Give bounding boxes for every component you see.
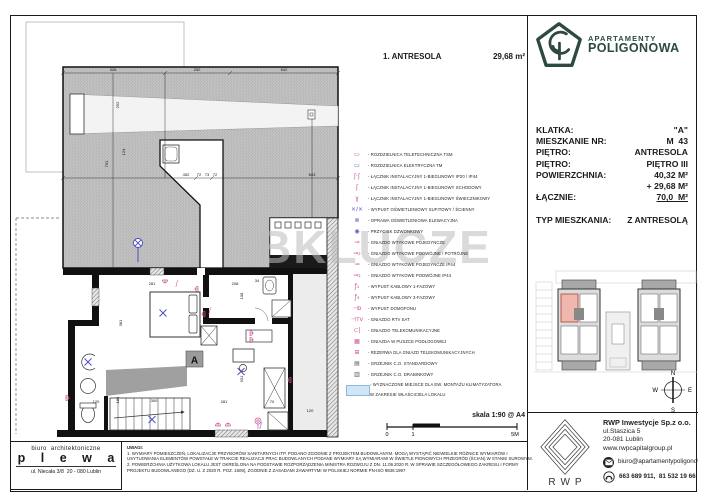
legend-symbol-icon: ɣ xyxy=(346,195,368,203)
info-label: PIĘTRO: xyxy=(536,147,571,158)
legend-item-label: - PRZYCISK DZWONKOWY xyxy=(368,227,423,237)
legend-symbol-icon: ▭ xyxy=(346,162,368,170)
title-block-panel: APARTAMENTY POLIGONOWA KLATKA: "A" MIESZ… xyxy=(527,15,698,490)
legend-item: ×∕× - WYPUST OŚWIETLENIOWY SUFITOWY / ŚC… xyxy=(346,204,524,215)
rwp-diamond-icon xyxy=(536,418,594,476)
legend-item-label: - ŁĄCZNIK INSTALACYJNY 1-BIEGUNOWY SCHOD… xyxy=(368,183,482,193)
info-value: PIĘTRO III xyxy=(646,159,688,170)
compass-n: N xyxy=(671,371,675,377)
window xyxy=(150,268,164,275)
info-row: PIĘTRO: PIĘTRO III xyxy=(536,159,688,170)
legend-item: ⊗ - OPRAWA OŚWIETLENIOWA ELEWACYJNA xyxy=(346,215,524,226)
legend-item: ⊣ᴅ - WYPUST DOMOFONU xyxy=(346,303,524,314)
symbols-legend: ▭ - ROZDZIELNICA TELETECHNICZNA TSM ▭ - … xyxy=(346,149,524,400)
legend-item-label: - GNIAZDO TELEKOMUNIKACYJNE xyxy=(368,326,440,336)
building-center xyxy=(606,312,630,370)
type-value: Z ANTRESOLĄ xyxy=(627,215,688,226)
info-label: KLATKA: xyxy=(536,125,574,136)
dim-label: 208 xyxy=(232,281,239,286)
door-gap xyxy=(197,268,205,275)
legend-item: ɣ - ŁĄCZNIK INSTALACYJNY 1-BIEGUNOWY ŚWI… xyxy=(346,193,524,204)
dim-label: 331 xyxy=(239,375,244,382)
window xyxy=(92,288,99,306)
legend-item: ⊸ - GNIAZDO WTYKOWE POJEDYNCZE IP44 xyxy=(346,259,524,270)
info-row: MIESZKANIE NR: M 43 xyxy=(536,136,688,147)
apartment-info: KLATKA: "A" MIESZKANIE NR: M 43 PIĘTRO: … xyxy=(536,125,688,227)
neighbor-dashed-boundary xyxy=(16,218,60,434)
dim-label: 452 xyxy=(183,172,190,177)
rwp-logo: RWP xyxy=(534,418,596,490)
plan-area: 29,68 m² xyxy=(493,52,525,61)
brand-line2: POLIGONOWA xyxy=(588,42,680,55)
info-value: + 29,68 M² xyxy=(647,181,688,192)
svg-text:1: 1 xyxy=(411,432,414,437)
legend-symbol-icon: ⊗ xyxy=(346,217,368,225)
info-label: MIESZKANIE NR: xyxy=(536,136,607,147)
legend-item-label: - GRZEJNIK C.O. DRABINKOWY xyxy=(368,370,433,380)
compass-rose: N S W E xyxy=(652,371,692,413)
dim-label: 70 xyxy=(270,399,275,404)
phone-row: 663 689 911, 81 532 19 66 xyxy=(603,471,698,483)
brand-logo-block: APARTAMENTY POLIGONOWA xyxy=(535,20,680,70)
email-row: biuro@apartamentypoligonowa.pl xyxy=(603,457,698,468)
legend-symbol-icon: ▭ xyxy=(346,151,368,159)
legend-item: ⊸₂ - GNIAZDO WTYKOWE PODWÓJNE / POTRÓJNE xyxy=(346,248,524,259)
info-row: PIĘTRO: ANTRESOLA xyxy=(536,147,688,158)
dim-label: 643 xyxy=(309,172,316,177)
poligonowa-pentagon-icon xyxy=(535,20,583,70)
dim-label: 72 xyxy=(213,172,218,177)
legend-item-label: - GNIAZDO RTV SAT xyxy=(368,315,410,325)
room-marker: A xyxy=(186,351,203,367)
developer-email: biuro@apartamentypoligonowa.pl xyxy=(618,458,698,466)
info-value: ANTRESOLA xyxy=(635,147,688,158)
info-label: POWIERZCHNIA: xyxy=(536,170,606,181)
dim-label: 381 xyxy=(118,319,123,326)
info-row: POWIERZCHNIA: 40,32 M² xyxy=(536,170,688,181)
legend-item-label: - WYPUST OŚWIETLENIOWY SUFITOWY / ŚCIENN… xyxy=(368,205,475,215)
architect-address: ul. Niecała 3/8 20 - 080 Lublin xyxy=(16,466,116,475)
legend-item: - WYZNACZONE MIEJSCE DLA EW. MONTAŻU KLI… xyxy=(346,380,524,400)
legend-item-label: - REZERWA DLA GNIAZD TELEKOMUNIKACYJNYCH xyxy=(368,348,475,358)
legend-item-label: - ŁĄCZNIK INSTALACYJNY 1-BIEGUNOWY ŚWIEC… xyxy=(368,194,490,204)
svg-text:0: 0 xyxy=(385,432,388,437)
building-right xyxy=(638,280,680,370)
legend-item: ◉ - PRZYCISK DZWONKOWY xyxy=(346,226,524,237)
info-value: "A" xyxy=(674,125,688,136)
legend-item-label: - GNIAZDO WTYKOWE POJEDYNCZE IP44 xyxy=(368,260,455,270)
dim-label: 73 xyxy=(205,172,210,177)
dim-label: 252 xyxy=(115,101,120,108)
dim-label: 281 xyxy=(221,399,228,404)
compass-e: E xyxy=(688,388,692,394)
site-key-plan: N S W E xyxy=(528,268,698,413)
legend-item-label: - ROZDZIELNICA TELETECHNICZNA TSM xyxy=(368,150,453,160)
notes-line: PROJEKTU BUDOWLANEGO (DZ. U. Z 2020 R. P… xyxy=(127,468,523,474)
legend-symbol-icon: ⊞ xyxy=(346,349,368,357)
legend-item: ▤ - GRZEJNIK C.O. STANDARDOWY xyxy=(346,358,524,369)
legend-item-label: - ROZDZIELNICA ELEKTRYCZNA TM xyxy=(368,161,442,171)
legend-symbol-icon: ▥ xyxy=(346,371,368,379)
compass-w: W xyxy=(652,388,658,394)
dim-label: 326 xyxy=(110,67,117,72)
info-row: ŁĄCZNIE: 70,0 M² xyxy=(536,192,688,203)
dim-label: 185 xyxy=(115,396,120,403)
legend-item: ▭ - ROZDZIELNICA ELEKTRYCZNA TM xyxy=(346,160,524,171)
legend-symbol-icon: ×∕× xyxy=(346,206,368,214)
info-row: KLATKA: "A" xyxy=(536,125,688,136)
scale-label: skala 1:90 @ A4 xyxy=(383,412,525,419)
dim-label: 72 xyxy=(197,172,202,177)
legend-item: ⊸ - GNIAZDO WTYKOWE POJEDYNCZE xyxy=(346,237,524,248)
info-label: ŁĄCZNIE: xyxy=(536,192,576,203)
phone-icon xyxy=(603,471,615,483)
legend-item: ʃ - ŁĄCZNIK INSTALACYJNY 1-BIEGUNOWY SCH… xyxy=(346,182,524,193)
developer-company: RWP Inwestycje Sp.z o.o. xyxy=(603,418,698,428)
legend-item-label: - WYPUST KABLOWY 1-FAZOWY xyxy=(368,282,435,292)
legend-item: ⊣ᴛᴠ - GNIAZDO RTV SAT xyxy=(346,314,524,325)
legend-item: ƒ₃ - WYPUST KABLOWY 3-FAZOWY xyxy=(346,292,524,303)
legend-item: ʃ·ʃ - ŁĄCZNIK INSTALACYJNY 1-BIEGUNOWY I… xyxy=(346,171,524,182)
legend-item-label: - OPRAWA OŚWIETLENIOWA ELEWACYJNA xyxy=(368,216,458,226)
legend-symbol-icon: ◉ xyxy=(346,228,368,236)
legend-symbol-icon: ʃ xyxy=(346,184,368,192)
developer-phone: 663 689 911, 81 532 19 66 xyxy=(619,473,696,481)
dim-label: 34 xyxy=(255,278,260,283)
svg-text:5M: 5M xyxy=(511,432,519,437)
apartment-type-row: TYP MIESZKANIA: Z ANTRESOLĄ xyxy=(536,215,688,226)
dim-label: 120 xyxy=(93,399,100,404)
legend-item-label: - GNIAZDO WTYKOWE PODWÓJNE / POTRÓJNE xyxy=(368,249,468,259)
legend-item-label: - GNIAZDO WTYKOWE POJEDYNCZE xyxy=(368,238,445,248)
scale-bar-block: skala 1:90 @ A4 0 1 5M xyxy=(383,412,525,442)
legend-item: ▥ - GRZEJNIK C.O. DRABINKOWY xyxy=(346,369,524,380)
legend-symbol-icon: ⊂| xyxy=(346,327,368,335)
architect-name: p l e w a xyxy=(11,452,121,465)
info-value: 70,0 M² xyxy=(656,192,688,203)
email-icon xyxy=(603,457,614,468)
legend-item: ⊸₂ - GNIAZDO WTYKOWE PODWÓJNE IP44 xyxy=(346,270,524,281)
legend-symbol-icon: ƒ₁ xyxy=(346,283,368,291)
legend-item: ⊂| - GNIAZDO TELEKOMUNIKACYJNE xyxy=(346,325,524,336)
legend-item-label: - ŁĄCZNIK INSTALACYJNY 1-BIEGUNOWY IP20 … xyxy=(368,172,478,182)
developer-address1: ul.Staszica 5 xyxy=(603,428,698,437)
info-value: M 43 xyxy=(667,136,689,147)
legend-item-label: - GNIAZDO WTYKOWE PODWÓJNE IP44 xyxy=(368,271,451,281)
plan-title-row: 1. ANTRESOLA 29,68 m² xyxy=(383,52,525,61)
developer-block: RWP RWP Inwestycje Sp.z o.o. ul.Staszica… xyxy=(528,412,698,490)
legend-symbol-icon: ⊸₂ xyxy=(346,250,368,258)
info-value: 40,32 M² xyxy=(654,170,688,181)
legend-symbol-icon: ⊣ᴛᴠ xyxy=(346,316,368,324)
legend-item-label: - WYPUST KABLOWY 3-FAZOWY xyxy=(368,293,435,303)
floorplan-page: A ʃ ʃ ʃ 32625264 xyxy=(0,0,707,500)
legend-symbol-icon: ▦ xyxy=(346,338,368,346)
legend-symbol-icon: ▤ xyxy=(346,360,368,368)
svg-text:A: A xyxy=(191,356,198,367)
notes-block: UWAGI: 1. WYMIARY POMIESZCZEŃ, LOKALIZAC… xyxy=(127,445,523,474)
developer-address2: 20-081 Lublin xyxy=(603,436,698,445)
legend-item: ƒ₁ - WYPUST KABLOWY 1-FAZOWY xyxy=(346,281,524,292)
legend-item: ▦ - GNIAZDA W PUSZCE PODŁOGOWEJ xyxy=(346,336,524,347)
slope-end-cap xyxy=(70,94,84,134)
type-label: TYP MIESZKANIA: xyxy=(536,215,611,226)
info-row: + 29,68 M² xyxy=(536,181,688,192)
building-left xyxy=(558,280,600,370)
dim-label: 120 xyxy=(307,408,314,413)
developer-website: www.rwpcapitalgroup.pl xyxy=(603,445,698,454)
legend-item-label: - GNIAZDA W PUSZCE PODŁOGOWEJ xyxy=(368,337,446,347)
dim-label: 791 xyxy=(104,160,109,167)
brand-text: APARTAMENTY POLIGONOWA xyxy=(588,35,680,56)
legend-item-label: - WYZNACZONE MIEJSCE DLA EW. MONTAŻU KLI… xyxy=(370,380,502,400)
dim-label: 300 xyxy=(151,398,158,403)
legend-item: ⊞ - REZERWA DLA GNIAZD TELEKOMUNIKACYJNY… xyxy=(346,347,524,358)
architect-box: biuro architektoniczne p l e w a ul. Nie… xyxy=(10,441,122,490)
window xyxy=(215,430,248,437)
legend-item: ▭ - ROZDZIELNICA TELETECHNICZNA TSM xyxy=(346,149,524,160)
legend-symbol-icon: ʃ·ʃ xyxy=(346,173,368,181)
dim-label: 281 xyxy=(149,281,156,286)
rwp-logo-text: RWP xyxy=(543,477,586,488)
legend-symbol-icon: ⊸ xyxy=(346,261,368,269)
legend-item-label: - GRZEJNIK C.O. STANDARDOWY xyxy=(368,359,438,369)
dim-label: 252 xyxy=(194,67,201,72)
dim-label: 124 xyxy=(121,148,126,155)
legend-symbol-icon xyxy=(346,385,370,396)
scale-bar: 0 1 5M xyxy=(383,419,525,437)
legend-symbol-icon: ⊸ xyxy=(346,239,368,247)
developer-info: RWP Inwestycje Sp.z o.o. ul.Staszica 5 2… xyxy=(603,418,698,490)
legend-symbol-icon: ⊸₂ xyxy=(346,272,368,280)
legend-symbol-icon: ƒ₃ xyxy=(346,294,368,302)
notes-line: 2. POWIERZCHNIA UŻYTKOWA LOKALU JEST OKR… xyxy=(127,462,523,468)
legend-item-label: - WYPUST DOMOFONU xyxy=(368,304,416,314)
info-label: PIĘTRO: xyxy=(536,159,571,170)
dim-label: 108 xyxy=(239,292,244,299)
plan-title: 1. ANTRESOLA xyxy=(383,52,441,61)
legend-symbol-icon: ⊣ᴅ xyxy=(346,305,368,313)
dim-label: 642 xyxy=(281,67,288,72)
roof-box-symbol xyxy=(308,110,315,119)
